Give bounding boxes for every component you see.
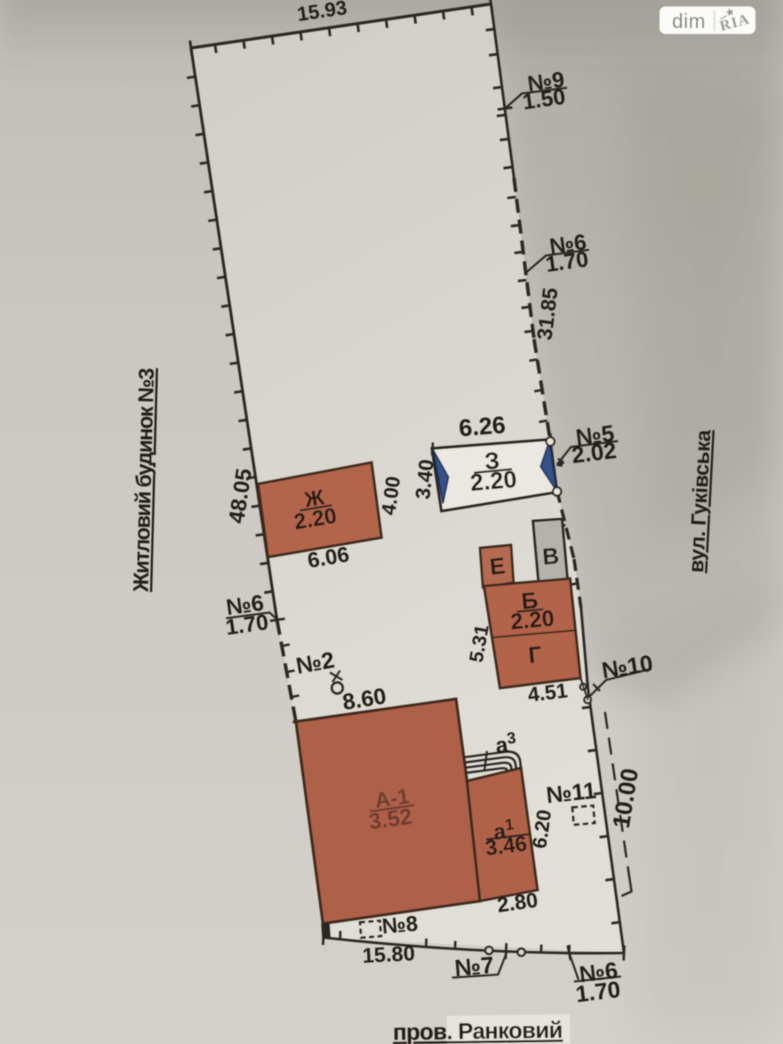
svg-text:пров. Ранковий: пров. Ранковий (393, 1017, 563, 1044)
svg-text:4.51: 4.51 (527, 679, 569, 707)
svg-text:3.40: 3.40 (412, 458, 439, 500)
svg-text:6.26: 6.26 (458, 412, 507, 443)
svg-text:2.20: 2.20 (469, 466, 518, 497)
svg-text:№11: №11 (545, 777, 598, 808)
svg-text:В: В (541, 542, 560, 569)
svg-text:2.20: 2.20 (509, 606, 555, 635)
svg-text:3.46: 3.46 (484, 832, 529, 861)
svg-text:Е: Е (488, 552, 506, 579)
svg-text:№7: №7 (454, 952, 495, 981)
svg-text:Г: Г (527, 641, 542, 668)
svg-text:dim: dim (672, 11, 706, 33)
svg-text:1.70: 1.70 (574, 976, 622, 1007)
svg-text:15.80: 15.80 (362, 942, 416, 968)
svg-text:№8: №8 (381, 912, 419, 939)
svg-text:2.02: 2.02 (570, 437, 618, 468)
